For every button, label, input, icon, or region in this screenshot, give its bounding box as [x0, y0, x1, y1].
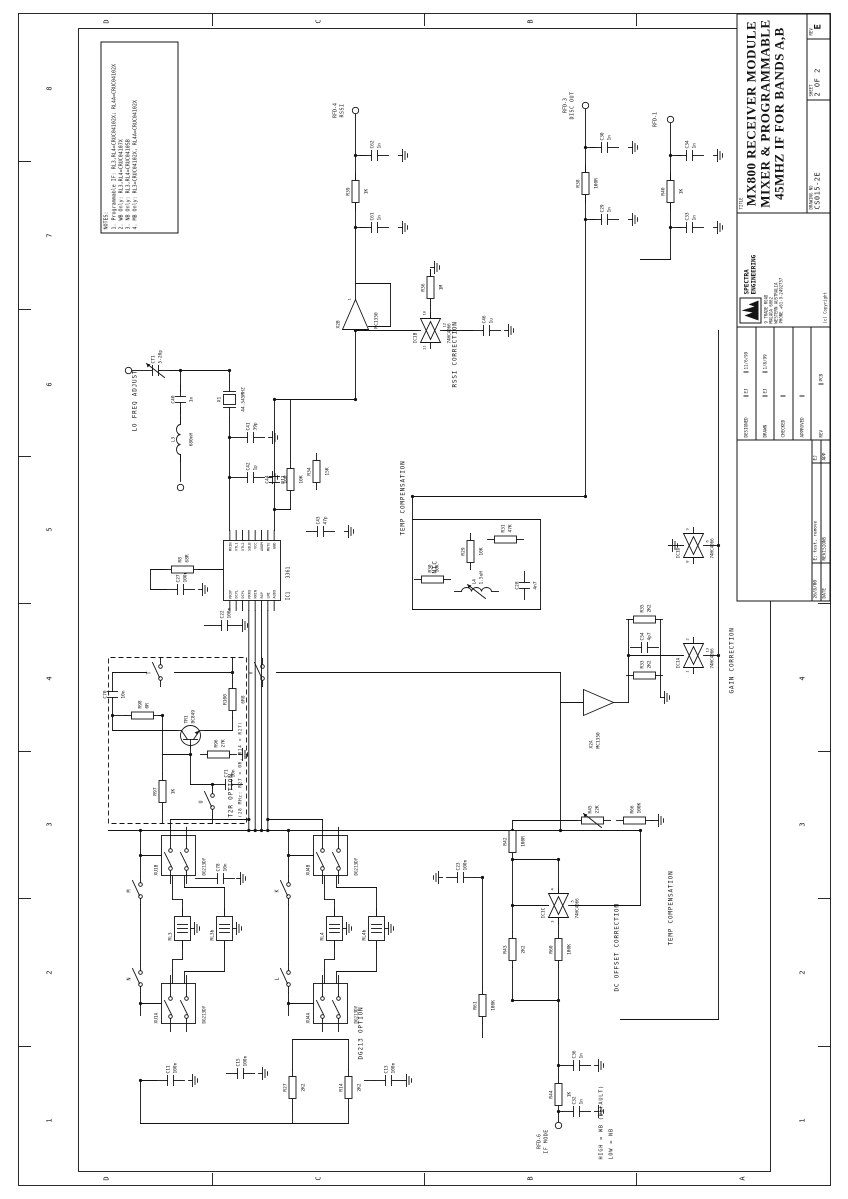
signoff-row-rev-pcb: REV PCB: [811, 327, 829, 439]
cap_v-C30: C301n: [590, 132, 618, 152]
svg-text:DCPL: DCPL: [241, 590, 245, 598]
svg-text:SQLB: SQLB: [247, 542, 251, 550]
cap_v-C11: C11100n: [156, 1062, 184, 1085]
svg-text:10: 10: [421, 310, 426, 315]
svg-text:100R: 100R: [593, 177, 599, 188]
revision-app: EJ: [812, 440, 820, 462]
res_h-R38: R38100R: [575, 165, 599, 201]
signoff-row: DESIGNED EJ 11/6/99: [737, 327, 756, 439]
svg-text:CT1: CT1: [150, 355, 156, 363]
svg-text:C71: C71: [223, 769, 229, 777]
svg-text:T2R OPTION: T2R OPTION: [227, 773, 234, 817]
svg-text:1.5uH: 1.5uH: [478, 570, 484, 584]
svg-text:8: 8: [684, 559, 689, 562]
cap_v-C36: C361n: [562, 1050, 590, 1070]
svg-text:C27: C27: [175, 574, 181, 582]
svg-text:XU4A: XU4A: [305, 1012, 311, 1023]
reed-N: N: [126, 964, 142, 992]
svg-text:3: 3: [549, 920, 554, 922]
svg-text:R36: R36: [420, 283, 426, 291]
svg-text:R29: R29: [460, 547, 466, 555]
svg-text:1K: 1K: [363, 188, 369, 194]
res_v-R98: R980R: [124, 700, 160, 719]
svg-text:10K: 10K: [478, 547, 484, 555]
svg-text:13: 13: [704, 647, 709, 652]
svg-text:4p7: 4p7: [646, 632, 652, 640]
svg-text:74HC4066: 74HC4066: [709, 647, 714, 668]
svg-text:DG213DY: DG213DY: [353, 857, 358, 875]
svg-text:10K: 10K: [298, 475, 304, 483]
filt-RL4: RL4: [319, 908, 342, 948]
svg-text:2K2: 2K2: [356, 1083, 362, 1091]
svg-text:9: 9: [684, 527, 689, 530]
svg-text:C43: C43: [315, 516, 321, 524]
svg-text:LOW = NB: LOW = NB: [608, 1128, 614, 1159]
res_v-R66: R66100K: [616, 802, 652, 824]
svg-text:1n: 1n: [376, 142, 382, 148]
company-address: 9 TRADE ROAD: [763, 216, 768, 323]
reed-M: M: [126, 876, 142, 904]
svg-text:4: 4: [798, 676, 806, 680]
trimres-R45: R4522K: [574, 805, 610, 827]
svg-text:R8: R8: [177, 556, 183, 562]
svg-text:B: B: [526, 19, 534, 23]
svg-text:68R: 68R: [184, 554, 190, 562]
svg-text:MC1350: MC1350: [595, 731, 601, 748]
svg-text:DG213DY: DG213DY: [353, 1005, 358, 1023]
svg-text:100K: 100K: [566, 943, 572, 954]
cap_h-C28: C284n7: [514, 571, 538, 599]
svg-text:8: 8: [45, 86, 53, 90]
svg-text:R39: R39: [345, 187, 351, 195]
svg-text:R31: R31: [500, 524, 506, 532]
xtal-X1: X144.545MHZ: [216, 381, 246, 417]
res_h-R29: R2910K: [460, 533, 484, 569]
company-address: WESTERN AUSTRALIA: [773, 216, 778, 323]
svg-text:100n: 100n: [226, 607, 232, 618]
svg-text:N: N: [126, 977, 132, 980]
svg-text:GAIN CORRECTION: GAIN CORRECTION: [728, 627, 735, 693]
svg-text:XU1A: XU1A: [153, 1012, 159, 1023]
connector-pad: [125, 367, 131, 373]
wires: [108, 109, 718, 1123]
svg-text:R44: R44: [548, 1090, 554, 1098]
notes-title: NOTES:: [103, 45, 110, 229]
svg-text:100R: 100R: [520, 835, 526, 846]
svg-text:4: 4: [549, 887, 554, 890]
drawing-title-line: 45MHZ IF FOR BANDS A,B: [772, 14, 786, 212]
svg-text:C22: C22: [219, 610, 225, 618]
svg-text:B: B: [526, 1176, 534, 1180]
res_h-R44: R441K: [548, 1076, 572, 1112]
cap_v-C62: C621n: [360, 140, 388, 160]
svg-text:R38: R38: [575, 179, 581, 187]
svg-text:47K: 47K: [507, 524, 513, 532]
svg-text:IC1A: IC1A: [675, 657, 681, 668]
svg-text:R35: R35: [639, 604, 645, 612]
res_h-R61: R61100K: [472, 987, 496, 1023]
svg-text:DCPL: DCPL: [234, 590, 238, 598]
svg-text:IC1B: IC1B: [412, 332, 418, 343]
cap_v-C32: C321n: [562, 1096, 590, 1116]
svg-text:HIGH = WB (DEFAULT): HIGH = WB (DEFAULT): [598, 1084, 604, 1159]
svg-text:C46: C46: [481, 315, 487, 323]
res_v-R8: R868R: [164, 554, 200, 573]
amp-X2A: X2AMC1350: [583, 689, 613, 748]
svg-text:3: 3: [45, 822, 53, 826]
res_h-R36: R361M: [420, 269, 444, 305]
svg-text:1M: 1M: [438, 284, 444, 290]
trimcap-CT1: CT15-20p: [141, 349, 169, 377]
dgsw-XU4B: XU4BDG213DY: [305, 827, 358, 883]
svg-text:1u: 1u: [488, 317, 494, 323]
company-address: PHONE +61-9-2492757: [778, 216, 783, 323]
svg-text:39p: 39p: [252, 422, 258, 430]
cap_v-C27: C27100n: [166, 571, 194, 594]
svg-text:RL3b: RL3b: [209, 929, 215, 940]
cap_v-C15: C15100n: [226, 1055, 254, 1078]
svg-text:27K: 27K: [220, 739, 226, 747]
svg-text:GND: GND: [272, 542, 276, 548]
connector-RFD-3: RFD-3DISC OUT: [562, 91, 588, 119]
svg-text:5: 5: [569, 900, 574, 902]
svg-text:74HC4066: 74HC4066: [446, 322, 451, 343]
svg-text:C44: C44: [264, 475, 270, 483]
svg-text:U: U: [198, 800, 204, 803]
svg-text:R100: R100: [222, 693, 228, 704]
filt-RL3b: RL3b: [209, 908, 232, 948]
svg-text:M: M: [126, 889, 132, 892]
bowtie-IC1D: 896IC1D74HC4066: [675, 527, 714, 563]
svg-text:RL3: RL3: [167, 932, 173, 940]
revision-header: APP: [821, 440, 829, 462]
cap_v-C23: C23100n: [446, 859, 474, 882]
company-logo-icon: [739, 297, 761, 323]
company-block: SPECTRA ENGINEERING 9 TRADE ROAD MALAGA …: [737, 212, 829, 326]
svg-text:C30: C30: [599, 132, 605, 140]
signoff-label: DRAWN: [762, 395, 767, 439]
svg-text:1: 1: [798, 1118, 806, 1122]
revision-header-row: DATE REVISIONS APP: [820, 440, 829, 600]
svg-text:AUDM: AUDM: [260, 542, 264, 550]
svg-text:C: C: [314, 19, 322, 23]
svg-text:X1: X1: [216, 396, 222, 402]
cap_v-C29: C291n: [590, 204, 618, 224]
pcb-label: PCB: [818, 327, 823, 383]
svg-text:5: 5: [45, 527, 53, 531]
svg-text:C13: C13: [383, 1065, 389, 1073]
svg-text:C62: C62: [369, 140, 375, 148]
svg-text:IF MODE: IF MODE: [543, 1129, 549, 1154]
svg-text:C36: C36: [571, 1050, 577, 1058]
svg-text:R34: R34: [306, 467, 312, 475]
svg-text:100n: 100n: [462, 859, 468, 870]
note-line: 2. WB Only: RL3,RL4=CRUC04107X: [118, 45, 125, 229]
svg-text:1n: 1n: [691, 142, 697, 148]
svg-text:R61: R61: [472, 1001, 478, 1009]
svg-text:A: A: [738, 1175, 746, 1180]
svg-text:10K: 10K: [434, 564, 440, 572]
svg-text:1n: 1n: [578, 1098, 584, 1104]
cap_v-C33: C331n: [675, 212, 703, 232]
svg-text:1K: 1K: [678, 188, 684, 194]
svg-text:LO FREQ ADJUST: LO FREQ ADJUST: [131, 369, 138, 431]
revision-header: REVISIONS: [821, 462, 829, 562]
svg-text:BC849: BC849: [190, 709, 196, 723]
signoff-by: EJ: [762, 371, 767, 395]
signoff-label: DESIGNED: [743, 395, 748, 439]
connector-pad: [177, 484, 183, 490]
signoff-table: DESIGNED EJ 11/6/99 DRAWN EJ 1/8/99 CHEC…: [737, 326, 829, 439]
svg-text:11: 11: [421, 344, 426, 349]
svg-text:RL4b: RL4b: [361, 929, 367, 940]
notes-box: NOTES: 1. Programmable IF: RL3,RL4=CRUC0…: [100, 41, 178, 233]
svg-text:2: 2: [798, 970, 806, 974]
svg-text:R66: R66: [629, 805, 635, 813]
svg-text:C42: C42: [245, 462, 251, 470]
title-block: 26/8/00 E: test, remove EJ DATE REVISION…: [736, 13, 830, 601]
revision-text: E: test, remove: [812, 462, 820, 562]
res_h-R40: R401K: [660, 173, 684, 209]
filt-RL4b: RL4b: [361, 908, 384, 948]
svg-text:2K2: 2K2: [646, 660, 652, 668]
svg-text:L3: L3: [170, 436, 176, 442]
svg-text:6R8: 6R8: [240, 695, 246, 703]
svg-text:15K: 15K: [324, 467, 330, 475]
reed-L: L: [274, 964, 290, 992]
svg-text:D: D: [102, 1176, 110, 1180]
revision-header: DATE: [821, 562, 829, 600]
svg-text:C78: C78: [215, 863, 221, 871]
svg-text:K: K: [274, 889, 280, 892]
svg-text:IC1D: IC1D: [675, 547, 681, 558]
svg-text:R33: R33: [639, 660, 645, 668]
connector-RFD-4: RFD-4RSSI: [332, 102, 358, 117]
svg-text:1n: 1n: [188, 396, 194, 402]
svg-text:1: 1: [45, 1118, 53, 1122]
note-line: 3. NB Only: RL3,RL4=CRUC04105B: [125, 45, 132, 229]
ind_v-L4: L41.5uH: [454, 570, 498, 598]
svg-text:R11: R11: [280, 475, 286, 483]
ind_h-L3: L3680nH: [170, 417, 194, 461]
svg-text:100n: 100n: [390, 1062, 396, 1073]
svg-text:C23: C23: [455, 862, 461, 870]
svg-text:R60: R60: [548, 945, 554, 953]
svg-text:R42: R42: [502, 837, 508, 845]
svg-text:RSSI CORRECTION: RSSI CORRECTION: [451, 321, 458, 387]
svg-text:C61: C61: [369, 212, 375, 220]
svg-text:44.545MHZ: 44.545MHZ: [240, 387, 246, 412]
ic16-IC1: MXOPMXINDCPLXTL1DCPLXTL2MXRQSQLBRRINVCCR…: [223, 530, 291, 610]
cap_v-C42: C421p: [236, 462, 264, 482]
res_v-R96: R9627K: [200, 739, 236, 758]
svg-text:10n: 10n: [230, 769, 236, 777]
svg-text:C33: C33: [684, 212, 690, 220]
cap_v-C46: C461u: [472, 315, 500, 335]
svg-text:10n: 10n: [120, 690, 126, 698]
sheet-number: 2 OF 2: [813, 42, 821, 96]
res_h-R42: R42100R: [502, 823, 526, 859]
svg-text:1K: 1K: [170, 788, 176, 794]
svg-text:1: 1: [346, 297, 351, 300]
res_h-R11: R1110K: [280, 461, 304, 497]
svg-text:R30: R30: [427, 564, 433, 572]
signoff-row: CHECKED: [774, 327, 793, 439]
svg-text:12: 12: [441, 322, 446, 327]
reed-U: U: [198, 787, 214, 815]
cap_v-C43: C4347p: [306, 516, 334, 536]
svg-text:R43: R43: [502, 945, 508, 953]
filt-RL3: RL3: [167, 908, 190, 948]
res_v-R35: R352K2: [626, 604, 662, 623]
revision-table: 26/8/00 E: test, remove EJ DATE REVISION…: [737, 439, 829, 600]
svg-text:C54: C54: [639, 632, 645, 640]
svg-text:C: C: [314, 1176, 322, 1180]
page: 1122334455667788DDCCBBAARSSI CORRECTIONT…: [0, 0, 848, 1199]
svg-text:MUTE: MUTE: [266, 542, 270, 550]
cap_v-C61: C611n: [360, 212, 388, 232]
schematic-canvas: 1122334455667788DDCCBBAARSSI CORRECTIONT…: [0, 0, 848, 1199]
revision-date: 26/8/00: [812, 562, 820, 600]
bowtie-IC1C: 345IC1C74HC4066: [540, 887, 579, 923]
signoff-row: DRAWN EJ 1/8/99: [756, 327, 775, 439]
res_h-R39: R391K: [345, 173, 369, 209]
svg-text:C32: C32: [571, 1096, 577, 1104]
svg-text:XTL1: XTL1: [234, 542, 238, 550]
res_h-R60: R60100K: [548, 931, 572, 967]
dgsw-XU1B: XU1BDG213DY: [153, 827, 206, 883]
svg-text:74HC4066: 74HC4066: [709, 537, 714, 558]
svg-text:3: 3: [798, 822, 806, 826]
svg-text:RL4: RL4: [319, 932, 325, 940]
svg-text:DISC OUT: DISC OUT: [569, 91, 575, 119]
svg-text:3361: 3361: [285, 566, 291, 578]
svg-text:IC1C: IC1C: [540, 907, 546, 918]
bowtie-IC1A: 1213IC1A74HC4066: [675, 637, 714, 673]
res_v-R31: R3147K: [487, 524, 523, 543]
res_h-R34: R3415K: [306, 453, 330, 489]
bowtie-IC1B: 111012IC1B74HC4066: [412, 310, 451, 350]
svg-text:C70: C70: [102, 690, 108, 698]
drawing-title-line: MIXER & PROGRAMMABLE: [758, 14, 772, 212]
rev-label: REV: [808, 17, 813, 35]
svg-text:MC1350: MC1350: [373, 311, 379, 328]
svg-text:XTL2: XTL2: [241, 542, 245, 550]
svg-text:C15: C15: [235, 1058, 241, 1066]
svg-text:100K: 100K: [490, 999, 496, 1010]
svg-text:1n: 1n: [606, 206, 612, 212]
svg-text:R14: R14: [338, 1083, 344, 1091]
svg-text:C40: C40: [170, 395, 176, 403]
svg-text:1K: 1K: [566, 1091, 572, 1097]
svg-text:MXOP: MXOP: [228, 590, 232, 598]
signoff-by: EJ: [743, 371, 748, 395]
svg-text:DG213DY: DG213DY: [201, 1005, 206, 1023]
title-area: TITLE MX800 RECEIVER MODULE MIXER & PROG…: [737, 14, 829, 212]
res_h-R97: R971K: [152, 773, 176, 809]
svg-text:2: 2: [45, 970, 53, 974]
sheet-label: SHEET: [808, 42, 813, 96]
svg-text:RFD-4: RFD-4: [332, 102, 338, 117]
drawing-no-label: DRAWING NO: [808, 103, 813, 209]
svg-text:RFD-1: RFD-1: [652, 111, 658, 126]
connector-RFD-1: RFD-1: [652, 111, 673, 126]
svg-text:5-20p: 5-20p: [157, 349, 163, 363]
cap_v-C34: C341n: [675, 140, 703, 160]
res_h-R43: R432K2: [502, 931, 526, 967]
svg-text:MXIN: MXIN: [228, 542, 232, 550]
svg-text:4: 4: [45, 676, 53, 680]
svg-text:100K: 100K: [636, 802, 642, 813]
signoff-row: APPROVED: [793, 327, 812, 439]
svg-text:RSSI: RSSI: [339, 103, 345, 117]
svg-text:X2A: X2A: [588, 740, 594, 748]
svg-text:C29: C29: [599, 204, 605, 212]
svg-text:TEMP COMPENSATION: TEMP COMPENSATION: [667, 870, 674, 945]
svg-text:C34: C34: [684, 140, 690, 148]
cap_v-C78: C7810n: [206, 863, 234, 883]
svg-text:22K: 22K: [594, 805, 600, 813]
reed-T: T: [146, 658, 162, 686]
svg-text:(28 MHz: R27 = 0R, R14 = R27): (28 MHz: R27 = 0R, R14 = R27): [237, 721, 242, 817]
svg-text:C41: C41: [245, 422, 251, 430]
rev-value: E: [813, 17, 823, 35]
revision-row: 26/8/00 E: test, remove EJ: [811, 440, 820, 600]
svg-text:2K2: 2K2: [520, 945, 526, 953]
svg-text:100n: 100n: [172, 1062, 178, 1073]
svg-text:C11: C11: [165, 1065, 171, 1073]
svg-text:DG213DY: DG213DY: [201, 857, 206, 875]
svg-text:X2B: X2B: [335, 320, 341, 328]
signoff-date: 11/6/99: [743, 327, 748, 371]
drawing-no: CS015-2E: [813, 103, 821, 209]
svg-text:R45: R45: [587, 805, 593, 813]
svg-text:V: V: [248, 671, 254, 674]
svg-text:R96: R96: [213, 739, 219, 747]
connector-RFD-6: RFD-6IF MODE: [536, 1122, 561, 1153]
svg-text:TEMP COMPENSATION: TEMP COMPENSATION: [399, 460, 406, 535]
reed-K: K: [274, 876, 290, 904]
svg-text:1n: 1n: [578, 1052, 584, 1058]
svg-text:XU4B: XU4B: [305, 864, 311, 875]
svg-text:IC1: IC1: [285, 591, 291, 600]
svg-text:4n7: 4n7: [532, 581, 538, 589]
company-name-2: ENGINEERING: [750, 254, 757, 294]
svg-text:1n: 1n: [606, 134, 612, 140]
cap_v-C41: C4139p: [236, 422, 264, 442]
svg-text:RFD-3: RFD-3: [562, 97, 568, 112]
company-name-1: SPECTRA: [743, 254, 750, 294]
svg-text:R98: R98: [137, 700, 143, 708]
svg-text:C28: C28: [514, 581, 520, 589]
svg-text:RFD-6: RFD-6: [536, 1133, 542, 1148]
svg-text:7: 7: [45, 233, 53, 237]
cap_v-C13: C13100n: [374, 1062, 402, 1085]
svg-text:LMI: LMI: [266, 592, 270, 598]
svg-text:100n: 100n: [242, 1055, 248, 1066]
svg-text:1n: 1n: [691, 214, 697, 220]
cap_h-C70: C7010n: [102, 680, 126, 708]
res_h-R14: R142K2: [338, 1069, 362, 1105]
res_v-R33: R332K2: [626, 660, 662, 679]
svg-text:R27: R27: [282, 1083, 288, 1091]
svg-text:VCC: VCC: [253, 542, 257, 548]
svg-text:47p: 47p: [322, 516, 328, 524]
svg-text:2: 2: [684, 638, 689, 640]
rev-label: REV: [818, 383, 823, 439]
svg-text:DC OFFSET CORRECTION: DC OFFSET CORRECTION: [613, 903, 620, 991]
svg-text:10n: 10n: [222, 863, 228, 871]
